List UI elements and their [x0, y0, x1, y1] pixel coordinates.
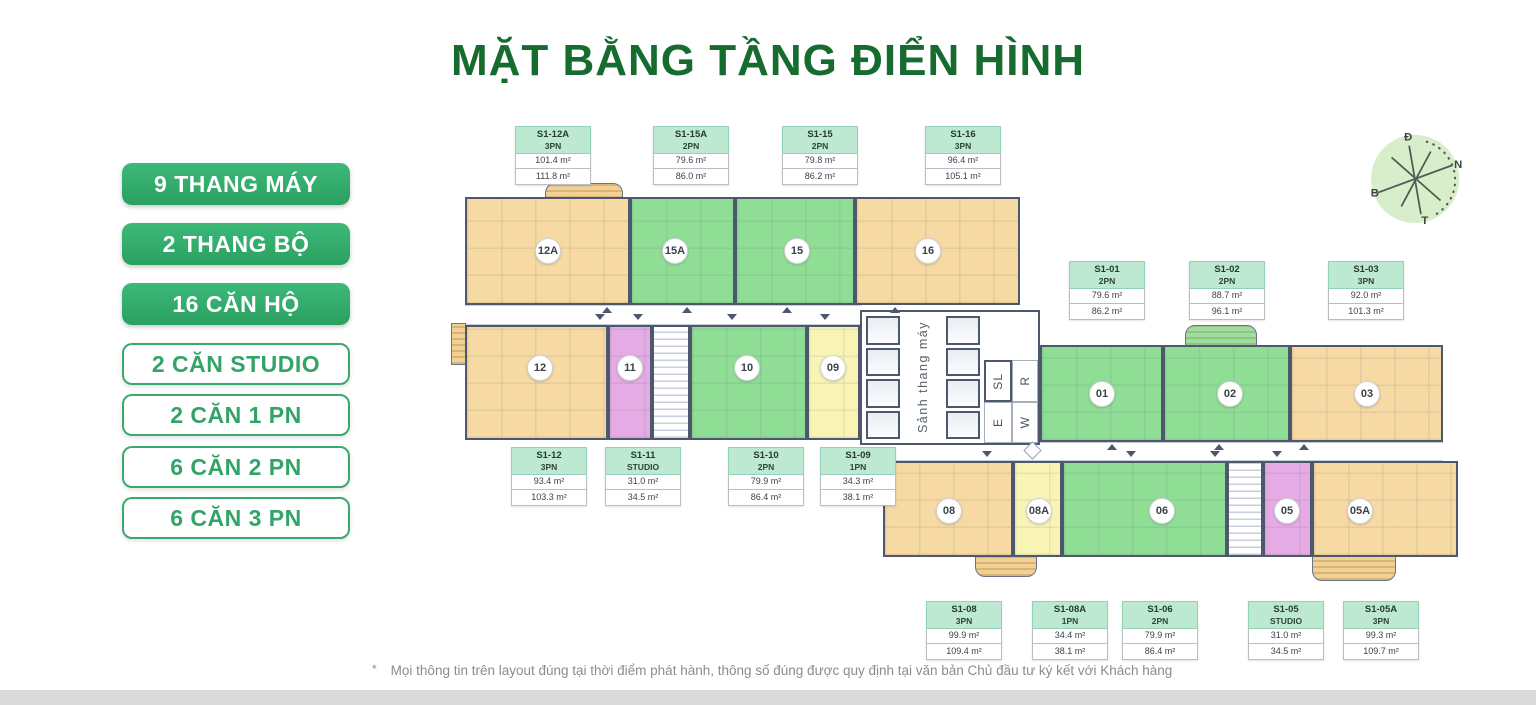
legend-badge-studio: 2 CĂN STUDIO: [122, 343, 350, 385]
unit-number-badge: 15A: [662, 238, 688, 264]
unit-label-header: S1-083PN: [926, 601, 1002, 629]
door-marker-icon: [602, 307, 612, 313]
floor-plan-page: MẶT BẰNG TẦNG ĐIỂN HÌNH 9 THANG MÁY 2 TH…: [0, 0, 1536, 705]
unit-label-s1-15a: S1-15A2PN 79.6 m² 86.0 m²: [653, 126, 729, 185]
bottom-band: [0, 690, 1536, 705]
legend-badge-elevators: 9 THANG MÁY: [122, 163, 350, 205]
unit-number-badge: 05A: [1347, 498, 1373, 524]
door-marker-icon: [1210, 451, 1220, 457]
unit-12: [465, 325, 608, 440]
unit-label-header: S1-123PN: [511, 447, 587, 475]
unit-05a: [1312, 461, 1458, 557]
balcony-unit-05a: [1312, 555, 1396, 581]
corridor-top-wing: [465, 305, 862, 325]
elevator-icon: [946, 316, 980, 345]
unit-label-header: S1-12A3PN: [515, 126, 591, 154]
unit-label-header: S1-012PN: [1069, 261, 1145, 289]
unit-label-header: S1-163PN: [925, 126, 1001, 154]
legend-badge-3pn: 6 CĂN 3 PN: [122, 497, 350, 539]
unit-label-s1-08: S1-083PN 99.9 m² 109.4 m²: [926, 601, 1002, 660]
unit-number-badge: 15: [784, 238, 810, 264]
unit-label-header: S1-08A1PN: [1032, 601, 1108, 629]
unit-number-badge: 12: [527, 355, 553, 381]
unit-label-header: S1-11STUDIO: [605, 447, 681, 475]
unit-10: [690, 325, 807, 440]
compass-north-label: B: [1371, 188, 1379, 200]
unit-label-s1-12a: S1-12A3PN 101.4 m² 111.8 m²: [515, 126, 591, 185]
door-marker-icon: [1107, 444, 1117, 450]
unit-label-s1-12: S1-123PN 93.4 m² 103.3 m²: [511, 447, 587, 506]
elevator-icon: [946, 379, 980, 408]
elevator-lobby-label: Sảnh thang máy: [900, 316, 946, 439]
unit-label-s1-09: S1-091PN 34.3 m² 38.1 m²: [820, 447, 896, 506]
unit-number-badge: 08: [936, 498, 962, 524]
door-marker-icon: [1126, 451, 1136, 457]
unit-label-s1-11: S1-11STUDIO 31.0 m² 34.5 m²: [605, 447, 681, 506]
unit-number-badge: 06: [1149, 498, 1175, 524]
elevator-icon: [866, 348, 900, 377]
compass-icon: Đ N B T: [1368, 128, 1466, 226]
compass-south-label: N: [1454, 159, 1462, 171]
unit-number-badge: 16: [915, 238, 941, 264]
elevator-icon: [866, 379, 900, 408]
elevator-icon: [946, 411, 980, 440]
balcony-unit-08: [975, 555, 1037, 577]
lobby-text: Sảnh thang máy: [916, 321, 930, 433]
unit-09: [807, 325, 860, 440]
unit-label-s1-15: S1-152PN 79.8 m² 86.2 m²: [782, 126, 858, 185]
door-marker-icon: [1272, 451, 1282, 457]
door-marker-icon: [727, 314, 737, 320]
door-marker-icon: [890, 307, 900, 313]
legend-badge-1pn: 2 CĂN 1 PN: [122, 394, 350, 436]
unit-06: [1062, 461, 1227, 557]
shaft-sl: SL: [984, 360, 1012, 402]
unit-label-header: S1-152PN: [782, 126, 858, 154]
unit-number-badge: 10: [734, 355, 760, 381]
door-marker-icon: [1214, 444, 1224, 450]
legend-badge-stairs: 2 THANG BỘ: [122, 223, 350, 265]
unit-label-header: S1-05STUDIO: [1248, 601, 1324, 629]
balcony-left: [451, 323, 466, 365]
shaft-e: E: [984, 402, 1012, 443]
footnote-asterisk: *: [372, 662, 377, 676]
unit-label-s1-05: S1-05STUDIO 31.0 m² 34.5 m²: [1248, 601, 1324, 660]
unit-label-header: S1-05A3PN: [1343, 601, 1419, 629]
unit-label-header: S1-102PN: [728, 447, 804, 475]
unit-label-s1-01: S1-012PN 79.6 m² 86.2 m²: [1069, 261, 1145, 320]
elevator-icon: [866, 316, 900, 345]
page-title: MẶT BẰNG TẦNG ĐIỂN HÌNH: [0, 36, 1536, 86]
elevator-icon: [946, 348, 980, 377]
elevator-icon: [866, 411, 900, 440]
unit-number-badge: 12A: [535, 238, 561, 264]
unit-label-s1-16: S1-163PN 96.4 m² 105.1 m²: [925, 126, 1001, 185]
unit-11: [608, 325, 652, 440]
elevator-bank-left: [866, 316, 900, 439]
unit-label-s1-05a: S1-05A3PN 99.3 m² 109.7 m²: [1343, 601, 1419, 660]
unit-label-s1-03: S1-033PN 92.0 m² 101.3 m²: [1328, 261, 1404, 320]
unit-label-header: S1-033PN: [1328, 261, 1404, 289]
legend-badge-2pn: 6 CĂN 2 PN: [122, 446, 350, 488]
door-marker-icon: [633, 314, 643, 320]
stairwell-east: [1227, 461, 1263, 557]
shaft-w: W: [1012, 402, 1038, 443]
door-marker-icon: [782, 307, 792, 313]
compass-west-label: T: [1421, 215, 1428, 226]
unit-number-badge: 08A: [1026, 498, 1052, 524]
door-marker-icon: [682, 307, 692, 313]
unit-number-badge: 01: [1089, 381, 1115, 407]
unit-number-badge: 05: [1274, 498, 1300, 524]
unit-label-header: S1-022PN: [1189, 261, 1265, 289]
unit-number-badge: 11: [617, 355, 643, 381]
unit-label-header: S1-091PN: [820, 447, 896, 475]
elevator-bank-right: [946, 316, 980, 439]
door-marker-icon: [1299, 444, 1309, 450]
unit-label-header: S1-15A2PN: [653, 126, 729, 154]
balcony-unit-02: [1185, 325, 1257, 346]
unit-number-badge: 03: [1354, 381, 1380, 407]
unit-label-header: S1-062PN: [1122, 601, 1198, 629]
unit-label-s1-08a: S1-08A1PN 34.4 m² 38.1 m²: [1032, 601, 1108, 660]
footnote: *Mọi thông tin trên layout đúng tại thời…: [372, 662, 1172, 678]
door-marker-icon: [595, 314, 605, 320]
door-marker-icon: [820, 314, 830, 320]
stairwell-west: [652, 325, 690, 440]
unit-number-badge: 02: [1217, 381, 1243, 407]
door-marker-icon: [982, 451, 992, 457]
shaft-r: R: [1012, 360, 1038, 402]
unit-label-s1-10: S1-102PN 79.9 m² 86.4 m²: [728, 447, 804, 506]
unit-label-s1-02: S1-022PN 88.7 m² 96.1 m²: [1189, 261, 1265, 320]
unit-label-s1-06: S1-062PN 79.9 m² 86.4 m²: [1122, 601, 1198, 660]
footnote-text: Mọi thông tin trên layout đúng tại thời …: [391, 663, 1173, 678]
legend-badge-apartments: 16 CĂN HỘ: [122, 283, 350, 325]
compass-east-label: Đ: [1404, 132, 1412, 144]
unit-number-badge: 09: [820, 355, 846, 381]
